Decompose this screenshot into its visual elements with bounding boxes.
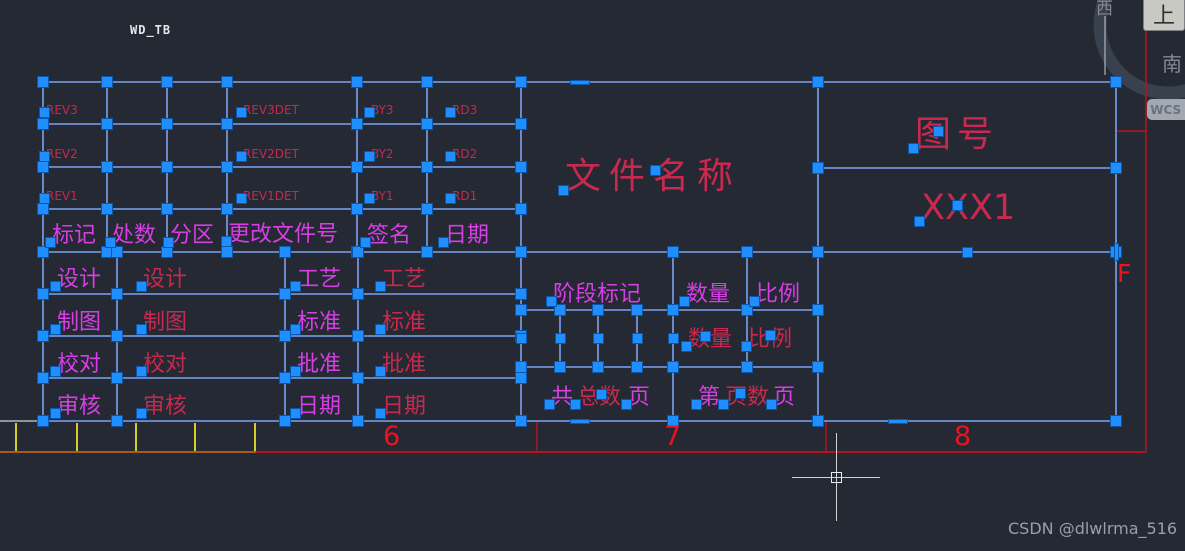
text-insertion-grip[interactable] — [39, 151, 50, 162]
text-insertion-grip[interactable] — [558, 185, 569, 196]
vertex-grip[interactable] — [812, 361, 824, 373]
text-entity[interactable]: 工艺 — [297, 268, 341, 291]
vertex-grip[interactable] — [161, 118, 173, 130]
text-entity[interactable]: 页数 — [725, 386, 769, 409]
text-insertion-grip[interactable] — [681, 341, 692, 352]
text-entity[interactable]: 设计 — [57, 268, 101, 291]
text-insertion-grip[interactable] — [221, 236, 232, 247]
text-entity[interactable]: REV3 — [46, 104, 78, 117]
wcs-dropdown[interactable]: WCS ▾ — [1147, 99, 1185, 120]
vertex-grip[interactable] — [515, 304, 527, 316]
vertex-grip[interactable] — [515, 415, 527, 427]
text-entity[interactable]: 审核 — [143, 395, 187, 418]
text-insertion-grip[interactable] — [50, 408, 61, 419]
text-insertion-grip[interactable] — [364, 193, 375, 204]
vertex-grip[interactable] — [812, 304, 824, 316]
text-insertion-grip[interactable] — [438, 237, 449, 248]
viewcube-west-label[interactable]: 西 — [1096, 0, 1113, 18]
vertex-grip[interactable] — [221, 76, 233, 88]
text-insertion-grip[interactable] — [136, 366, 147, 377]
text-insertion-grip[interactable] — [621, 399, 632, 410]
model-space[interactable]: 上 西 南 WCS ▾ WD_TB F REV3REV3DETBY3RD3REV… — [0, 0, 1185, 551]
midpoint-grip[interactable] — [570, 80, 590, 85]
vertex-grip[interactable] — [111, 246, 123, 258]
vertex-grip[interactable] — [221, 203, 233, 215]
text-insertion-grip[interactable] — [39, 193, 50, 204]
vertex-grip[interactable] — [515, 203, 527, 215]
text-insertion-grip[interactable] — [570, 399, 581, 410]
vertex-grip[interactable] — [37, 330, 49, 342]
text-insertion-grip[interactable] — [236, 107, 247, 118]
text-insertion-grip[interactable] — [360, 237, 371, 248]
text-insertion-grip[interactable] — [290, 366, 301, 377]
text-insertion-grip[interactable] — [236, 193, 247, 204]
vertex-grip[interactable] — [812, 162, 824, 174]
text-insertion-grip[interactable] — [914, 216, 925, 227]
text-entity[interactable]: RD1 — [452, 190, 477, 203]
vertex-grip[interactable] — [741, 246, 753, 258]
vertex-grip[interactable] — [161, 76, 173, 88]
vertex-grip[interactable] — [421, 118, 433, 130]
vertex-grip[interactable] — [37, 288, 49, 300]
midpoint-grip[interactable] — [570, 419, 590, 424]
vertex-grip[interactable] — [631, 304, 643, 316]
text-insertion-grip[interactable] — [445, 107, 456, 118]
vertex-grip[interactable] — [667, 304, 679, 316]
vertex-grip[interactable] — [351, 118, 363, 130]
grip[interactable] — [650, 165, 661, 176]
text-insertion-grip[interactable] — [364, 107, 375, 118]
vertex-grip[interactable] — [421, 246, 433, 258]
text-entity[interactable]: 日期 — [445, 224, 489, 247]
text-entity[interactable]: XXX1 — [921, 190, 1015, 227]
watermark-text: CSDN @dlwlrma_516 — [1008, 521, 1177, 538]
text-entity[interactable]: 图号 — [915, 116, 999, 154]
vertex-grip[interactable] — [631, 361, 643, 373]
wcs-label: WCS — [1150, 103, 1181, 117]
vertex-grip[interactable] — [37, 246, 49, 258]
text-entity[interactable]: REV2DET — [243, 148, 299, 161]
vertex-grip[interactable] — [37, 118, 49, 130]
vertex-grip[interactable] — [352, 372, 364, 384]
vertex-grip[interactable] — [812, 415, 824, 427]
text-entity[interactable]: 分区 — [170, 224, 214, 247]
grip[interactable] — [933, 126, 944, 137]
grip[interactable] — [962, 247, 973, 258]
midpoint-grip[interactable] — [1114, 243, 1119, 261]
vertex-grip[interactable] — [221, 246, 233, 258]
vertex-grip[interactable] — [101, 76, 113, 88]
vertex-grip[interactable] — [352, 415, 364, 427]
vertex-grip[interactable] — [515, 288, 527, 300]
vertex-grip[interactable] — [111, 372, 123, 384]
vertex-grip[interactable] — [37, 415, 49, 427]
vertex-grip[interactable] — [812, 246, 824, 258]
text-insertion-grip[interactable] — [136, 408, 147, 419]
text-entity[interactable]: 批准 — [382, 353, 426, 376]
vertex-grip[interactable] — [161, 246, 173, 258]
grip[interactable] — [952, 200, 963, 211]
text-entity[interactable]: 数量 — [686, 283, 730, 306]
text-insertion-grip[interactable] — [136, 281, 147, 292]
vertex-grip[interactable] — [812, 76, 824, 88]
vertex-grip[interactable] — [554, 361, 566, 373]
grip[interactable] — [765, 330, 776, 341]
vertex-grip[interactable] — [37, 76, 49, 88]
text-insertion-grip[interactable] — [105, 237, 116, 248]
viewcube-south-label[interactable]: 南 — [1162, 54, 1182, 75]
frame-zone-number[interactable]: 7 — [664, 423, 681, 452]
vertex-grip[interactable] — [667, 361, 679, 373]
grip[interactable] — [596, 389, 607, 400]
text-insertion-grip[interactable] — [39, 107, 50, 118]
text-insertion-grip[interactable] — [375, 366, 386, 377]
vertex-grip[interactable] — [352, 330, 364, 342]
vertex-grip[interactable] — [352, 246, 364, 258]
text-entity[interactable]: REV1DET — [243, 190, 299, 203]
vertex-grip[interactable] — [1110, 415, 1122, 427]
vertex-grip[interactable] — [421, 161, 433, 173]
grip[interactable] — [700, 331, 711, 342]
text-entity[interactable]: 阶段标记 — [553, 283, 641, 306]
text-insertion-grip[interactable] — [445, 193, 456, 204]
vertex-grip[interactable] — [221, 118, 233, 130]
text-entity[interactable]: 制图 — [143, 311, 187, 334]
vertex-grip[interactable] — [101, 161, 113, 173]
viewcube-top-face[interactable]: 上 — [1143, 0, 1185, 31]
grip[interactable] — [735, 388, 746, 399]
vertex-grip[interactable] — [111, 415, 123, 427]
text-insertion-grip[interactable] — [546, 296, 557, 307]
frame-zone-number[interactable]: 8 — [954, 423, 971, 452]
vertex-grip[interactable] — [161, 203, 173, 215]
text-entity[interactable]: 制图 — [57, 311, 101, 334]
text-insertion-grip[interactable] — [236, 151, 247, 162]
text-insertion-grip[interactable] — [749, 296, 760, 307]
vertex-grip[interactable] — [741, 361, 753, 373]
vertex-grip[interactable] — [101, 203, 113, 215]
text-entity[interactable]: 标准 — [297, 311, 341, 334]
vertex-grip[interactable] — [592, 361, 604, 373]
text-insertion-grip[interactable] — [45, 237, 56, 248]
vertex-grip[interactable] — [37, 161, 49, 173]
vertex-grip[interactable] — [592, 304, 604, 316]
text-entity[interactable]: 校对 — [57, 353, 101, 376]
text-insertion-grip[interactable] — [50, 324, 61, 335]
text-entity[interactable]: 工艺 — [382, 268, 426, 291]
vertex-grip[interactable] — [351, 76, 363, 88]
vertex-grip[interactable] — [515, 361, 527, 373]
text-entity[interactable]: 标记 — [52, 224, 96, 247]
grip[interactable] — [593, 333, 604, 344]
text-entity[interactable]: RD2 — [452, 148, 477, 161]
vertex-grip[interactable] — [515, 161, 527, 173]
text-insertion-grip[interactable] — [679, 296, 690, 307]
text-insertion-grip[interactable] — [290, 281, 301, 292]
vertex-grip[interactable] — [515, 246, 527, 258]
text-insertion-grip[interactable] — [718, 399, 729, 410]
text-insertion-grip[interactable] — [544, 399, 555, 410]
vertex-grip[interactable] — [352, 288, 364, 300]
text-insertion-grip[interactable] — [741, 341, 752, 352]
pickbox-icon — [831, 472, 842, 483]
text-insertion-grip[interactable] — [375, 408, 386, 419]
vertex-grip[interactable] — [221, 161, 233, 173]
text-insertion-grip[interactable] — [364, 151, 375, 162]
vertex-grip[interactable] — [279, 246, 291, 258]
block-name-text[interactable]: WD_TB — [130, 24, 171, 37]
vertex-grip[interactable] — [515, 76, 527, 88]
vertex-grip[interactable] — [421, 203, 433, 215]
vertex-grip[interactable] — [111, 330, 123, 342]
text-entity[interactable]: 标准 — [382, 311, 426, 334]
text-entity[interactable]: 审核 — [57, 395, 101, 418]
vertex-grip[interactable] — [515, 372, 527, 384]
vertex-grip[interactable] — [667, 246, 679, 258]
vertex-grip[interactable] — [111, 288, 123, 300]
text-entity[interactable]: 设计 — [143, 268, 187, 291]
vertex-grip[interactable] — [161, 161, 173, 173]
grip[interactable] — [632, 333, 643, 344]
vertex-grip[interactable] — [351, 203, 363, 215]
text-entity[interactable]: REV2 — [46, 148, 78, 161]
text-insertion-grip[interactable] — [766, 399, 777, 410]
text-entity[interactable]: 签名 — [367, 224, 411, 247]
viewcube-top-label: 上 — [1153, 0, 1175, 30]
vertex-grip[interactable] — [37, 372, 49, 384]
text-entity[interactable]: 处数 — [112, 224, 156, 247]
vertex-grip[interactable] — [37, 203, 49, 215]
text-insertion-grip[interactable] — [136, 324, 147, 335]
text-insertion-grip[interactable] — [290, 408, 301, 419]
text-insertion-grip[interactable] — [375, 281, 386, 292]
vertex-grip[interactable] — [515, 118, 527, 130]
midpoint-grip[interactable] — [888, 419, 908, 424]
grip[interactable] — [668, 333, 679, 344]
vertex-grip[interactable] — [1110, 162, 1122, 174]
frame-row-letter[interactable]: F — [1117, 261, 1131, 288]
text-insertion-grip[interactable] — [163, 237, 174, 248]
frame-zone-number[interactable]: 6 — [383, 423, 400, 452]
text-insertion-grip[interactable] — [50, 366, 61, 377]
text-insertion-grip[interactable] — [691, 399, 702, 410]
text-entity[interactable]: 校对 — [143, 353, 187, 376]
text-entity[interactable]: 日期 — [382, 395, 426, 418]
vertex-grip[interactable] — [351, 161, 363, 173]
text-entity[interactable]: 比例 — [756, 283, 800, 306]
text-entity[interactable]: 日期 — [297, 395, 341, 418]
vertex-grip[interactable] — [421, 76, 433, 88]
text-insertion-grip[interactable] — [445, 151, 456, 162]
text-entity[interactable]: 更改文件号 — [228, 223, 338, 246]
text-entity[interactable]: RD3 — [452, 104, 477, 117]
text-entity[interactable]: REV3DET — [243, 104, 299, 117]
text-insertion-grip[interactable] — [290, 324, 301, 335]
grip[interactable] — [555, 333, 566, 344]
vertex-grip[interactable] — [1110, 76, 1122, 88]
text-insertion-grip[interactable] — [50, 281, 61, 292]
text-entity[interactable]: REV1 — [46, 190, 78, 203]
text-insertion-grip[interactable] — [375, 324, 386, 335]
vertex-grip[interactable] — [101, 118, 113, 130]
text-insertion-grip[interactable] — [908, 143, 919, 154]
text-entity[interactable]: 批准 — [297, 353, 341, 376]
grip[interactable] — [516, 333, 527, 344]
